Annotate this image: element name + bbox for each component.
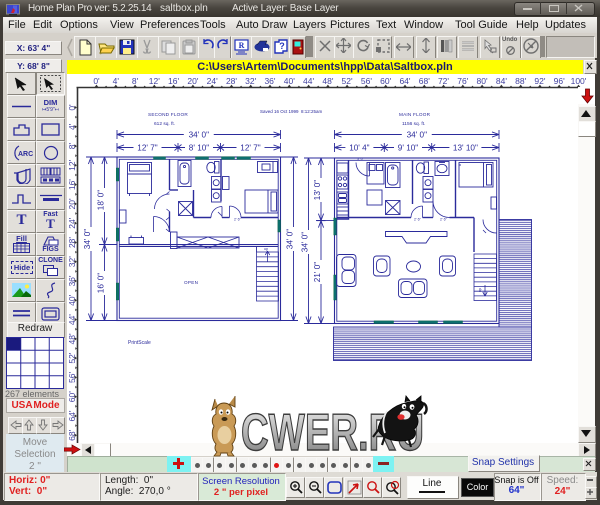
svg-text:2' 6": 2' 6" — [440, 218, 448, 222]
svg-text:?: ? — [279, 41, 285, 51]
svg-text:92': 92' — [534, 76, 545, 86]
svg-text:10' 4": 10' 4" — [349, 144, 369, 153]
svg-text:34' 0": 34' 0" — [83, 229, 92, 249]
svg-text:R: R — [239, 41, 245, 50]
svg-text:12' 7": 12' 7" — [137, 144, 157, 153]
svg-text:36': 36' — [264, 76, 275, 86]
svg-text:OPEN: OPEN — [184, 280, 198, 285]
svg-text:2' 6": 2' 6" — [414, 218, 422, 222]
svg-text:12' 7": 12' 7" — [240, 144, 260, 153]
svg-text:0': 0' — [93, 76, 100, 86]
svg-text:MAIN FLOOR: MAIN FLOOR — [399, 112, 431, 117]
svg-text:2' 6": 2' 6" — [234, 218, 242, 222]
svg-text:1156 sq. ft.: 1156 sq. ft. — [402, 121, 425, 127]
svg-text:16': 16' — [168, 76, 179, 86]
svg-text:up: up — [264, 247, 268, 251]
svg-text:40': 40' — [284, 76, 295, 86]
svg-text:PrintScale: PrintScale — [128, 340, 151, 346]
svg-text:Saved 16 Oct 1999 8:12:25am: Saved 16 Oct 1999 8:12:25am — [260, 109, 323, 114]
svg-text:20': 20' — [187, 76, 198, 86]
svg-text:34' 0": 34' 0" — [189, 131, 209, 140]
svg-text:34' 0": 34' 0" — [301, 232, 310, 252]
svg-text:96': 96' — [554, 76, 565, 86]
svg-text:48': 48' — [322, 76, 333, 86]
svg-text:34' 0": 34' 0" — [286, 229, 295, 249]
svg-text:up: up — [478, 288, 482, 292]
svg-text:8': 8' — [132, 76, 139, 86]
svg-text:16' 0": 16' 0" — [97, 273, 106, 293]
svg-text:76': 76' — [457, 76, 468, 86]
svg-text:SECOND FLOOR: SECOND FLOOR — [148, 112, 188, 117]
svg-text:80': 80' — [477, 76, 488, 86]
svg-text:18' 0": 18' 0" — [97, 190, 106, 210]
svg-text:100': 100' — [571, 76, 587, 86]
svg-text:32': 32' — [245, 76, 256, 86]
svg-text:ARC: ARC — [18, 151, 33, 158]
svg-text:8' 10": 8' 10" — [189, 144, 209, 153]
svg-text:34' 0": 34' 0" — [407, 131, 427, 140]
svg-text:4': 4' — [113, 76, 120, 86]
svg-text:64': 64' — [399, 76, 410, 86]
svg-text:3' 0": 3' 0" — [357, 157, 365, 161]
svg-text:24': 24' — [207, 76, 218, 86]
svg-text:28': 28' — [226, 76, 237, 86]
svg-text:60': 60' — [380, 76, 391, 86]
svg-text:13' 10": 13' 10" — [453, 144, 478, 153]
svg-text:56': 56' — [361, 76, 372, 86]
svg-text:9' 10": 9' 10" — [398, 144, 418, 153]
svg-text:52': 52' — [342, 76, 353, 86]
svg-text:21' 0": 21' 0" — [313, 262, 322, 282]
svg-text:72': 72' — [438, 76, 449, 86]
svg-text:13' 0": 13' 0" — [313, 180, 322, 200]
svg-text:612 sq. ft.: 612 sq. ft. — [154, 121, 175, 127]
svg-text:68': 68' — [419, 76, 430, 86]
svg-text:12': 12' — [149, 76, 160, 86]
svg-text:84': 84' — [496, 76, 507, 86]
svg-text:88': 88' — [515, 76, 526, 86]
svg-text:44': 44' — [303, 76, 314, 86]
